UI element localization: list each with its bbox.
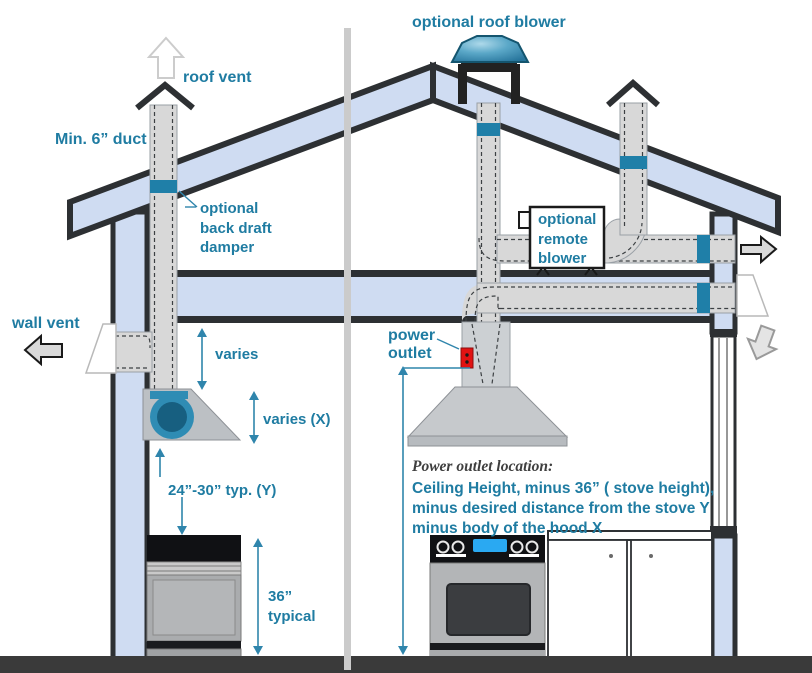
burner-knob <box>512 542 523 553</box>
note-line-3: minus body of the hood X <box>412 520 603 537</box>
right-wall-upper <box>712 214 735 332</box>
label-roof-blower: optional roof blower <box>412 14 566 31</box>
right-wall-lower <box>712 536 735 660</box>
burner-knob <box>527 542 538 553</box>
roof-duct-damper <box>477 123 500 136</box>
right-window <box>710 329 737 536</box>
right-stove <box>430 535 545 657</box>
attic-duct-damper <box>697 235 710 263</box>
room-ceiling-line <box>143 316 714 323</box>
label-remote-2: remote <box>538 231 588 248</box>
wall-vent-duct-stub <box>115 332 152 372</box>
label-varies: varies <box>215 346 258 363</box>
left-stove <box>147 535 241 658</box>
label-typ-y: 24”-30” typ. (Y) <box>168 482 276 499</box>
note-title: Power outlet location: <box>412 458 553 475</box>
label-back-draft-3: damper <box>200 239 254 256</box>
ceiling-duct-damper <box>697 283 710 313</box>
label-outlet: outlet <box>388 345 432 362</box>
hood-blower-fan <box>157 402 187 432</box>
note-line-1: Ceiling Height, minus 36” ( stove height… <box>412 480 714 497</box>
label-36-2: typical <box>268 608 316 625</box>
oven-window <box>447 584 530 635</box>
stove-display <box>473 539 507 552</box>
label-remote-1: optional <box>538 211 596 228</box>
cabinet-handle <box>609 554 613 558</box>
diagram-canvas: optional roof blower roof vent Min. 6” d… <box>0 0 812 673</box>
label-remote-3: blower <box>538 250 587 267</box>
label-back-draft-1: optional <box>200 200 258 217</box>
attic-floor-line <box>143 270 714 277</box>
center-divider <box>344 28 351 670</box>
label-varies-x: varies (X) <box>263 411 331 428</box>
burner-knob <box>438 542 449 553</box>
cabinet-handle <box>649 554 653 558</box>
cabinet-door <box>548 540 627 657</box>
label-back-draft-2: back draft <box>200 220 272 237</box>
label-wall-vent: wall vent <box>11 315 80 332</box>
left-wall <box>113 212 147 660</box>
label-min-duct: Min. 6” duct <box>55 131 147 148</box>
cabinet-door <box>631 540 712 657</box>
back-draft-damper <box>150 180 177 193</box>
second-vent-damper <box>620 156 647 169</box>
label-36-1: 36” <box>268 588 292 605</box>
floor <box>0 656 812 673</box>
power-outlet <box>461 348 473 368</box>
label-power: power <box>388 327 435 344</box>
label-roof-vent: roof vent <box>183 69 252 86</box>
burner-knob <box>453 542 464 553</box>
note-line-2: minus desired distance from the stove Y <box>412 500 710 517</box>
venting-diagram: optional roof blower roof vent Min. 6” d… <box>0 0 812 673</box>
